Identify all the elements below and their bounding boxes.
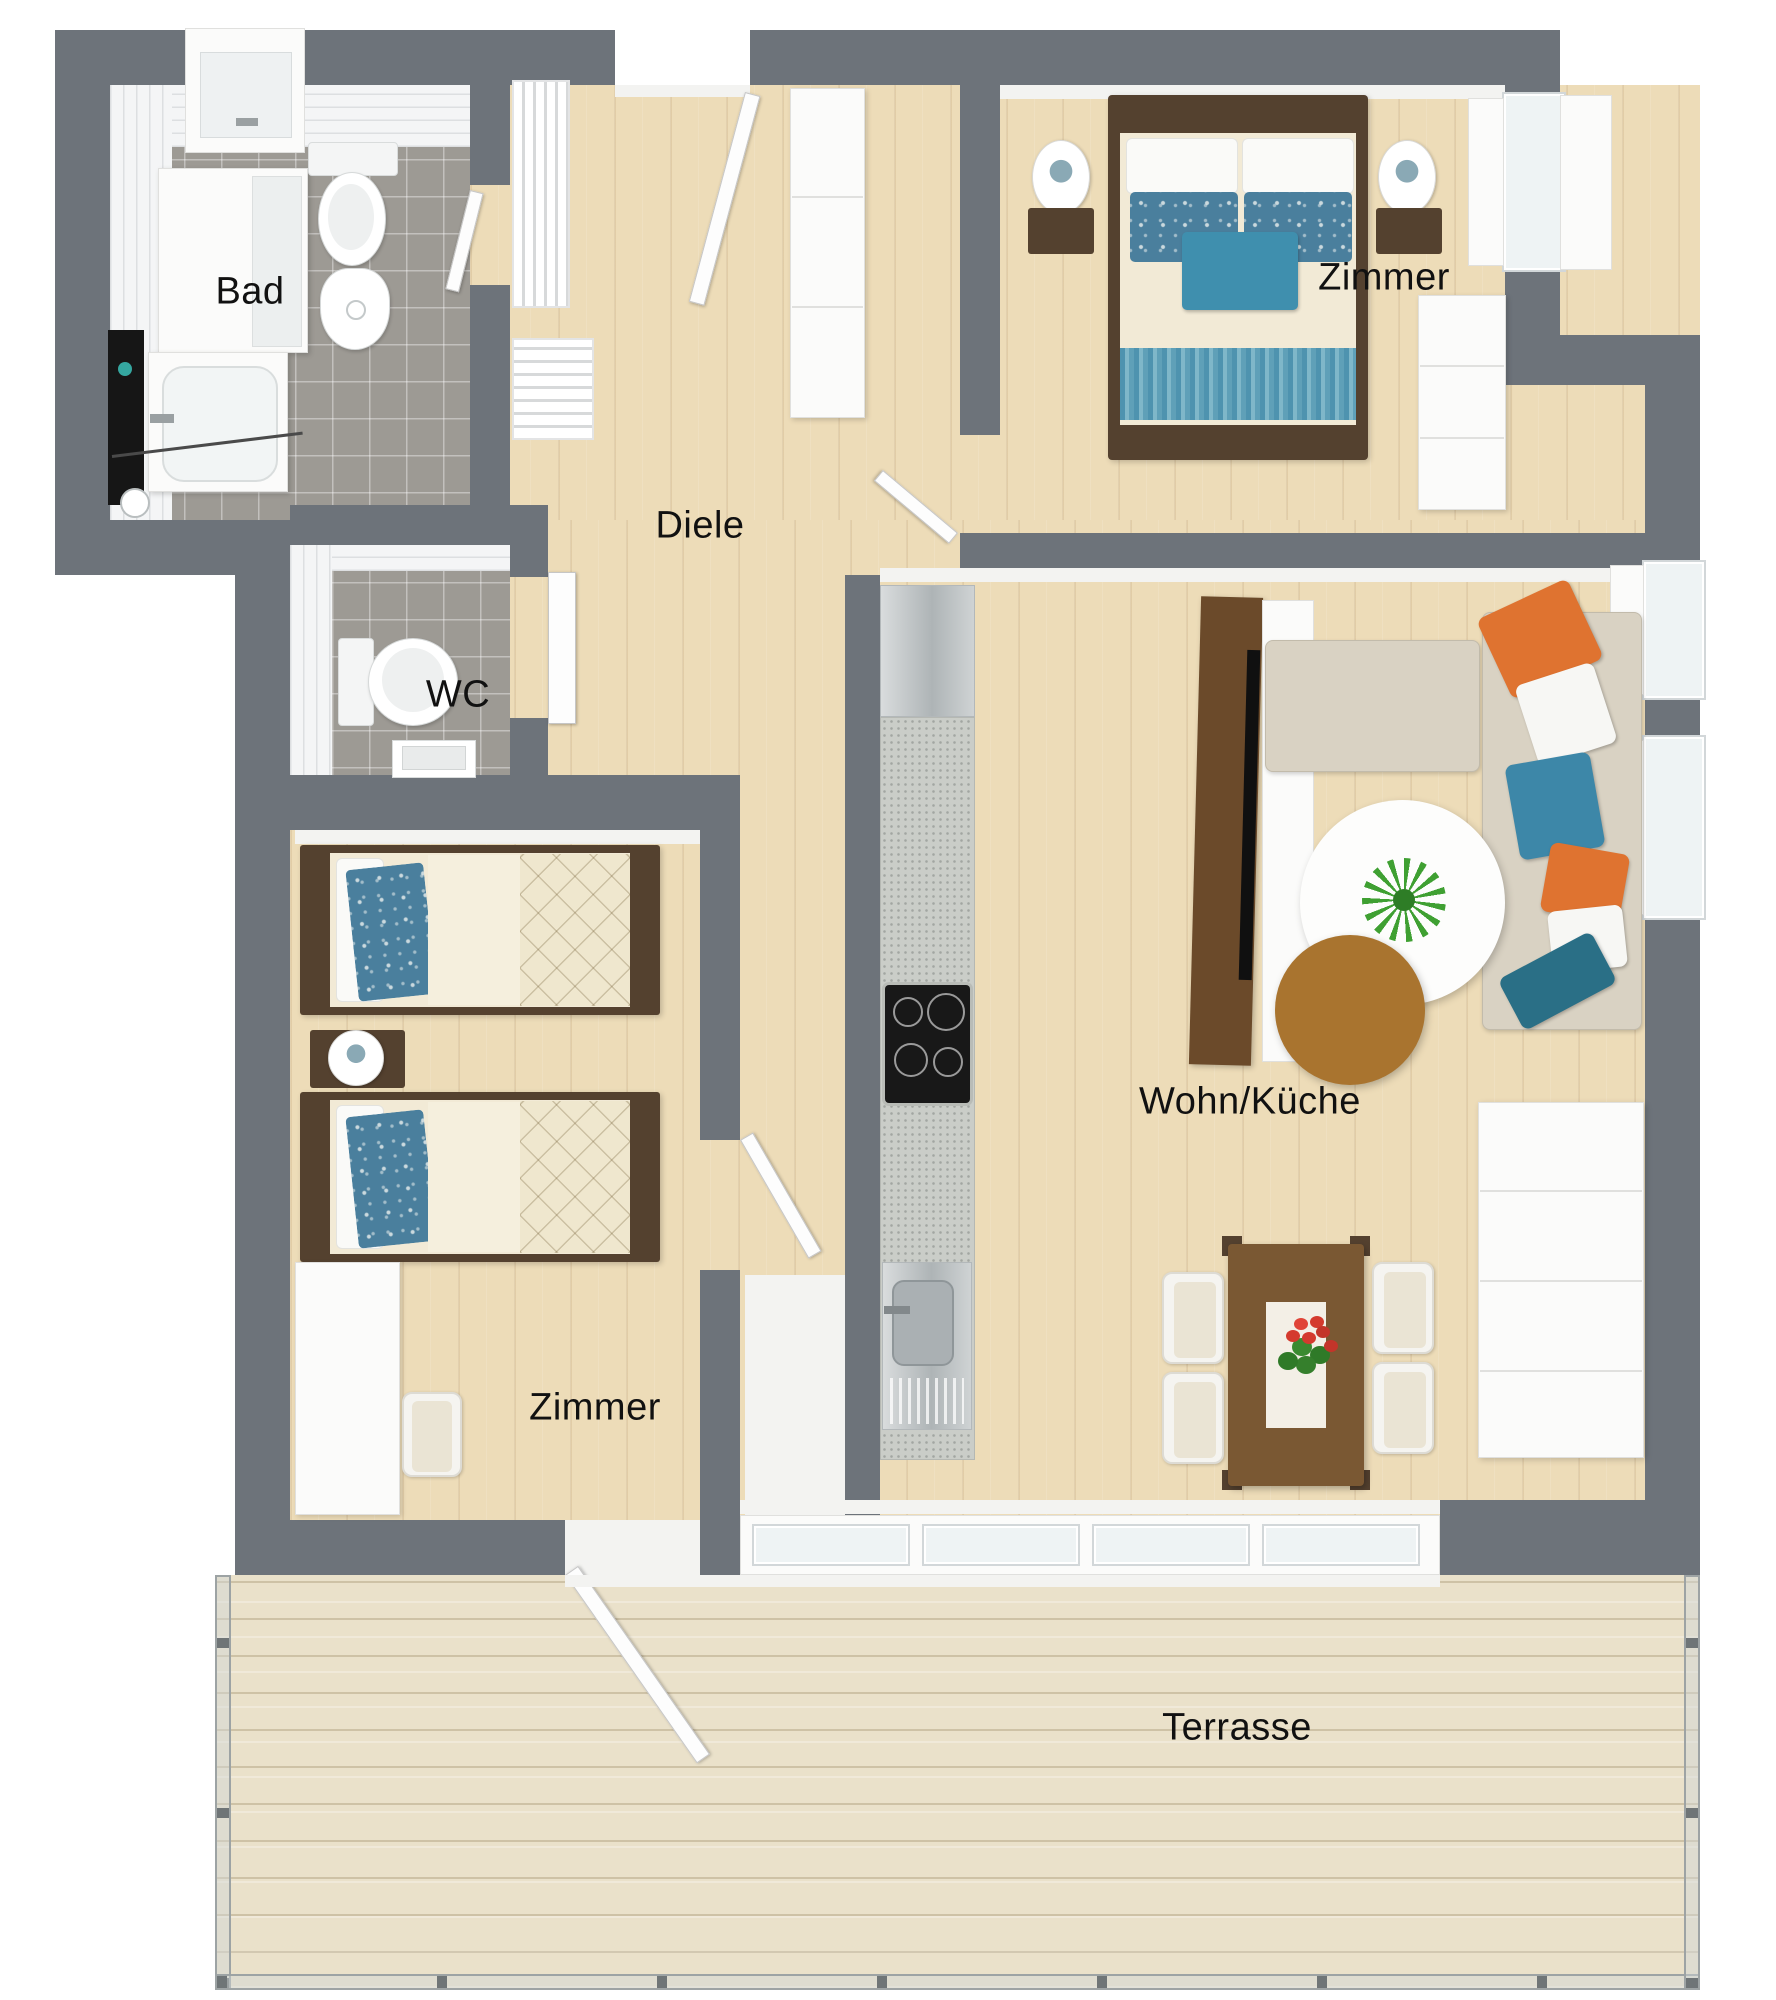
wall-bedroom2-right-top <box>700 830 740 1140</box>
washing-machine-front <box>252 176 302 347</box>
living-sideboard-line-1 <box>1480 1190 1642 1192</box>
wall-bottom-bedroom2 <box>235 1520 565 1575</box>
wall-bad-right <box>470 85 510 185</box>
wc-door-leaf <box>548 572 576 724</box>
bedroom1-dresser-line-1 <box>1420 365 1504 367</box>
living-sideboard-line-2 <box>1480 1280 1642 1282</box>
wall-bedroom2-right-bottom <box>700 1270 740 1520</box>
single-bed-2-floral-pillow <box>345 1109 436 1248</box>
sliding-door-pane-3 <box>1092 1524 1250 1566</box>
entrance-opening <box>615 30 750 85</box>
wall-bottom-stub <box>700 1520 740 1575</box>
room-label-zimmer-nord: Zimmer <box>1318 257 1450 300</box>
bedroom2-desk-chair <box>402 1392 462 1477</box>
bedroom2-desk <box>295 1262 400 1515</box>
wall-bottom-right <box>1440 1500 1700 1575</box>
vanity-faucet-icon <box>150 414 174 423</box>
bidet-drain-icon <box>346 300 366 320</box>
wall-wc-right-top <box>510 505 548 577</box>
coat-cabinet <box>790 88 865 418</box>
wall-kitchen <box>845 575 880 1520</box>
terrace-railing-bottom <box>215 1974 1700 1990</box>
kitchen-sink-faucet <box>884 1306 910 1314</box>
bed-double-pillow-right <box>1242 138 1354 194</box>
wallface-bedroom2-top <box>295 830 700 844</box>
nightstand-right <box>1376 208 1442 254</box>
terrace-railing-right <box>1684 1575 1700 1990</box>
sliding-door-pane-2 <box>922 1524 1080 1566</box>
single-bed-1-floral-pillow <box>345 862 436 1001</box>
fridge <box>880 585 975 717</box>
bedroom2-lamp <box>328 1030 384 1086</box>
wallface-corridor <box>745 1275 845 1520</box>
cooktop-burner-2 <box>927 993 965 1031</box>
dining-chair-3 <box>1372 1262 1434 1354</box>
room-label-diele: Diele <box>655 505 744 548</box>
coat-cabinet-shelf-line-1 <box>792 196 863 198</box>
dining-chair-1 <box>1162 1272 1224 1364</box>
bedroom1-dresser-line-2 <box>1420 437 1504 439</box>
wall-bedroom1-left <box>960 85 1000 435</box>
bed-double-pillow-left <box>1126 138 1238 194</box>
sliding-door-pane-1 <box>752 1524 910 1566</box>
dining-chair-2 <box>1162 1372 1224 1464</box>
living-window-lower <box>1642 735 1706 920</box>
wc-hand-sink-basin <box>402 746 466 770</box>
nightstand-left <box>1028 208 1094 254</box>
wc-wall-tiles-top <box>332 545 510 571</box>
kitchen-sink-basin <box>892 1280 954 1366</box>
bathroom-mirror <box>108 330 144 505</box>
room-label-terrasse: Terrasse <box>1162 1707 1312 1750</box>
wall-bedroom2-left <box>235 520 290 1575</box>
nightstand-lamp-left <box>1032 140 1090 214</box>
terrace-deck <box>215 1575 1700 1990</box>
bed-double-accent-pillow <box>1182 232 1298 310</box>
wall-left <box>55 30 110 575</box>
coat-cabinet-shelf-line-2 <box>792 306 863 308</box>
bedroom1-window <box>1502 92 1566 272</box>
wall-living-right <box>1645 335 1700 1575</box>
sliding-door-pane-4 <box>1262 1524 1420 1566</box>
terrace-step <box>565 1575 1440 1587</box>
bedroom1-window-sill <box>1468 98 1504 266</box>
sofa-chaise <box>1265 640 1480 772</box>
cosmetics-bottle-icon <box>118 362 132 376</box>
single-bed-1-sheet <box>428 855 520 1005</box>
single-bed-2-sheet <box>428 1102 520 1252</box>
wall-wc-bottom <box>235 775 740 830</box>
terrace-railing-left <box>215 1575 231 1990</box>
plant <box>1362 858 1446 942</box>
shower-head-icon <box>120 488 150 518</box>
wallface-sliding-threshold <box>740 1500 1440 1514</box>
dining-flowers-red <box>1286 1330 1300 1342</box>
dining-chair-4 <box>1372 1362 1434 1454</box>
dining-flowers-leaves <box>1278 1352 1298 1370</box>
wall-bedroom1-bottom <box>960 533 1700 568</box>
wallface-living-top <box>880 568 1645 582</box>
coffee-table-wood <box>1275 935 1425 1085</box>
room-label-wc: WC <box>426 674 490 717</box>
bad-toilet-seat <box>328 184 374 250</box>
wall-bad-bottom <box>290 505 510 545</box>
room-label-wohn-kueche: Wohn/Küche <box>1139 1081 1361 1124</box>
living-sideboard-line-3 <box>1480 1370 1642 1372</box>
terrace-door-opening <box>565 1520 700 1575</box>
slatted-radiator <box>512 80 570 308</box>
bed-double-runner <box>1120 348 1356 420</box>
wall-bad-right-lower <box>470 285 510 520</box>
cooktop-burner-4 <box>933 1047 963 1077</box>
nightstand-lamp-right <box>1378 140 1436 214</box>
single-bed-2-quilt <box>520 1101 630 1253</box>
room-label-zimmer-sued: Zimmer <box>529 1387 661 1430</box>
vanity-sink <box>162 366 278 482</box>
cooktop-burner-1 <box>893 997 923 1027</box>
wc-wall-tiles-left <box>290 545 332 775</box>
room-label-bad: Bad <box>215 271 284 314</box>
kitchen-sink-drainboard <box>890 1378 964 1424</box>
living-window-upper <box>1642 560 1706 700</box>
bedroom1-dresser <box>1418 295 1506 510</box>
single-bed-1-quilt <box>520 854 630 1006</box>
shower-faucet-icon <box>236 118 258 126</box>
bedroom1-window-ledge <box>1560 95 1612 270</box>
cooktop-burner-3 <box>894 1043 928 1077</box>
floor-plan: Bad WC Diele Zimmer Wohn/Küche Zimmer Te… <box>0 0 1776 2000</box>
slatted-bench <box>512 338 594 440</box>
cooktop <box>885 985 970 1103</box>
bad-toilet-tank <box>308 142 398 176</box>
entrance-threshold <box>615 85 750 97</box>
